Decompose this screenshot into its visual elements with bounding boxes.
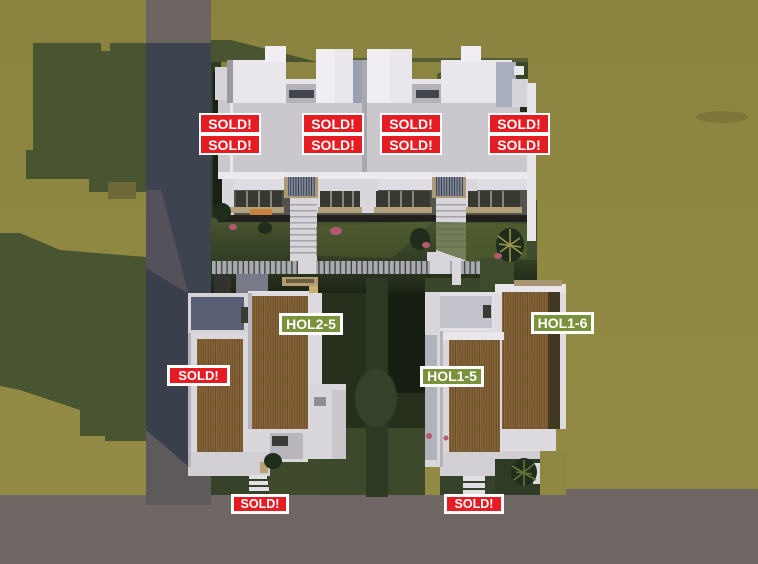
svg-text:SOLD!: SOLD! xyxy=(178,368,218,383)
svg-text:SOLD!: SOLD! xyxy=(311,116,355,132)
svg-text:SOLD!: SOLD! xyxy=(389,116,433,132)
svg-text:SOLD!: SOLD! xyxy=(241,497,280,511)
svg-text:SOLD!: SOLD! xyxy=(497,116,541,132)
svg-text:SOLD!: SOLD! xyxy=(455,497,494,511)
svg-text:HOL1-5: HOL1-5 xyxy=(427,368,477,384)
svg-text:HOL1-6: HOL1-6 xyxy=(538,315,588,331)
svg-text:HOL2-5: HOL2-5 xyxy=(286,316,336,332)
svg-text:SOLD!: SOLD! xyxy=(311,137,355,153)
svg-text:SOLD!: SOLD! xyxy=(389,137,433,153)
svg-text:SOLD!: SOLD! xyxy=(208,116,252,132)
svg-text:SOLD!: SOLD! xyxy=(497,137,541,153)
svg-text:SOLD!: SOLD! xyxy=(208,137,252,153)
